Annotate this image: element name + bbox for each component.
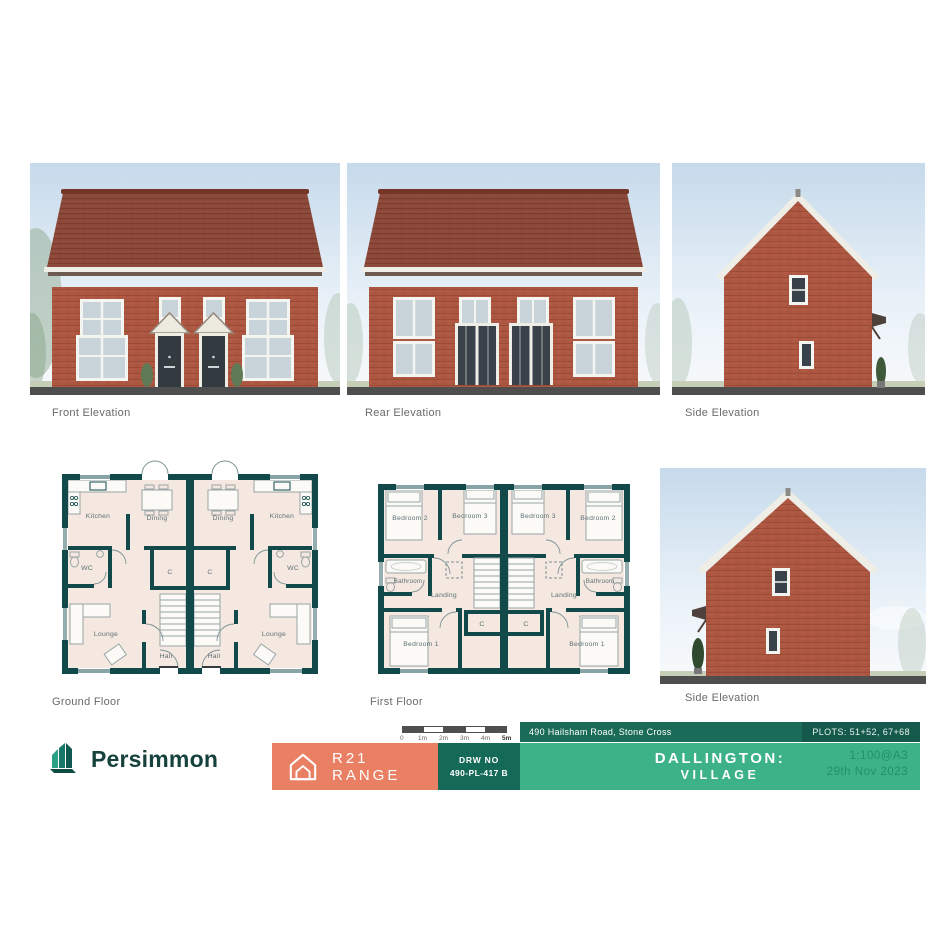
room-label: Lounge — [262, 631, 286, 638]
drawing-date: 29th Nov 2023 — [827, 766, 908, 778]
development-block: DALLINGTON: VILLAGE 1:100@A3 29th Nov 20… — [520, 743, 920, 790]
scale-tick: 5m — [502, 735, 511, 742]
brand-name: Persimmon — [91, 746, 218, 773]
ground-floor-plan: Kitchen Dining WC C Lounge Hall Kitchen … — [50, 458, 330, 690]
scale-tick: 4m — [481, 735, 490, 742]
drawing-scale: 1:100@A3 — [827, 750, 908, 762]
room-label: Landing — [431, 592, 457, 599]
room-label: C — [523, 621, 528, 628]
room-label: Bedroom 3 — [520, 513, 556, 520]
side-elevation-bottom-caption: Side Elevation — [685, 692, 760, 704]
room-label: WC — [287, 565, 299, 572]
persimmon-brand: Persimmon — [46, 741, 218, 777]
room-label: Bedroom 1 — [569, 641, 605, 648]
scale-tick: 2m — [439, 735, 448, 742]
room-label: Hall — [160, 653, 173, 660]
scale-and-date: 1:100@A3 29th Nov 2023 — [827, 750, 908, 778]
room-label: Lounge — [94, 631, 118, 638]
room-label: Bedroom 2 — [580, 515, 616, 522]
front-elevation-caption: Front Elevation — [52, 407, 130, 419]
drawing-sheet: Front Elevation Rear Elevation Side Elev… — [0, 0, 945, 945]
room-label: Bedroom 1 — [403, 641, 439, 648]
site-address: 490 Hailsham Road, Stone Cross — [520, 722, 802, 742]
scale-tick: 0 — [400, 735, 404, 742]
room-label: Bedroom 3 — [452, 513, 488, 520]
door-swing-arcs — [142, 461, 238, 474]
room-label: C — [207, 569, 212, 576]
scale-bar-segments — [402, 726, 512, 733]
first-floor-plan: Bedroom 2 Bedroom 3 Bathroom Landing C B… — [366, 470, 642, 688]
room-label: Kitchen — [270, 513, 294, 520]
room-label: Dining — [213, 515, 234, 522]
persimmon-logo-icon — [46, 741, 82, 777]
house-outline-icon — [288, 752, 318, 782]
room-label: Bathroom — [394, 578, 422, 585]
room-label: Hall — [208, 653, 221, 660]
room-label: C — [167, 569, 172, 576]
room-label: Kitchen — [86, 513, 110, 520]
range-label: R21 RANGE — [332, 750, 438, 784]
side-elevation-top-caption: Side Elevation — [685, 407, 760, 419]
side-elevation-top-drawing — [672, 163, 925, 403]
drw-no-label: DRW NO — [459, 755, 499, 765]
room-label: WC — [81, 565, 93, 572]
scale-tick: 3m — [460, 735, 469, 742]
first-floor-caption: First Floor — [370, 696, 423, 708]
ground-floor-caption: Ground Floor — [52, 696, 120, 708]
room-label: Dining — [147, 515, 168, 522]
drawing-number-block: DRW NO 490-PL-417 B — [438, 743, 520, 790]
room-label: Bathroom — [586, 578, 614, 585]
range-block: R21 RANGE — [272, 743, 438, 790]
address-strip: 490 Hailsham Road, Stone Cross PLOTS: 51… — [520, 722, 920, 742]
rear-elevation-drawing — [347, 163, 660, 403]
room-label: Bedroom 2 — [392, 515, 428, 522]
side-elevation-bottom-drawing — [660, 468, 926, 694]
rear-elevation-caption: Rear Elevation — [365, 407, 441, 419]
drw-no-value: 490-PL-417 B — [450, 768, 508, 778]
front-elevation-drawing — [30, 163, 340, 403]
room-label: C — [479, 621, 484, 628]
plots-label: PLOTS: 51+52, 67+68 — [802, 722, 920, 742]
room-label: Landing — [551, 592, 577, 599]
scale-tick: 1m — [418, 735, 427, 742]
